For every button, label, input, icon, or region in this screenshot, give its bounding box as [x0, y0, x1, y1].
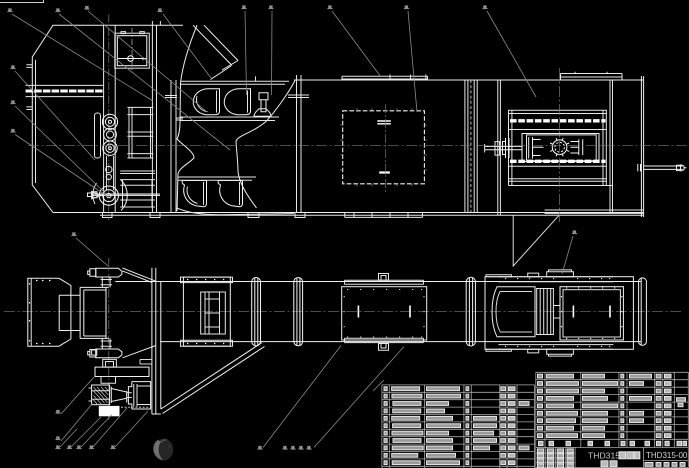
svg-text:THD315: THD315 [588, 451, 620, 461]
svg-text:THD315-00: THD315-00 [646, 451, 688, 460]
